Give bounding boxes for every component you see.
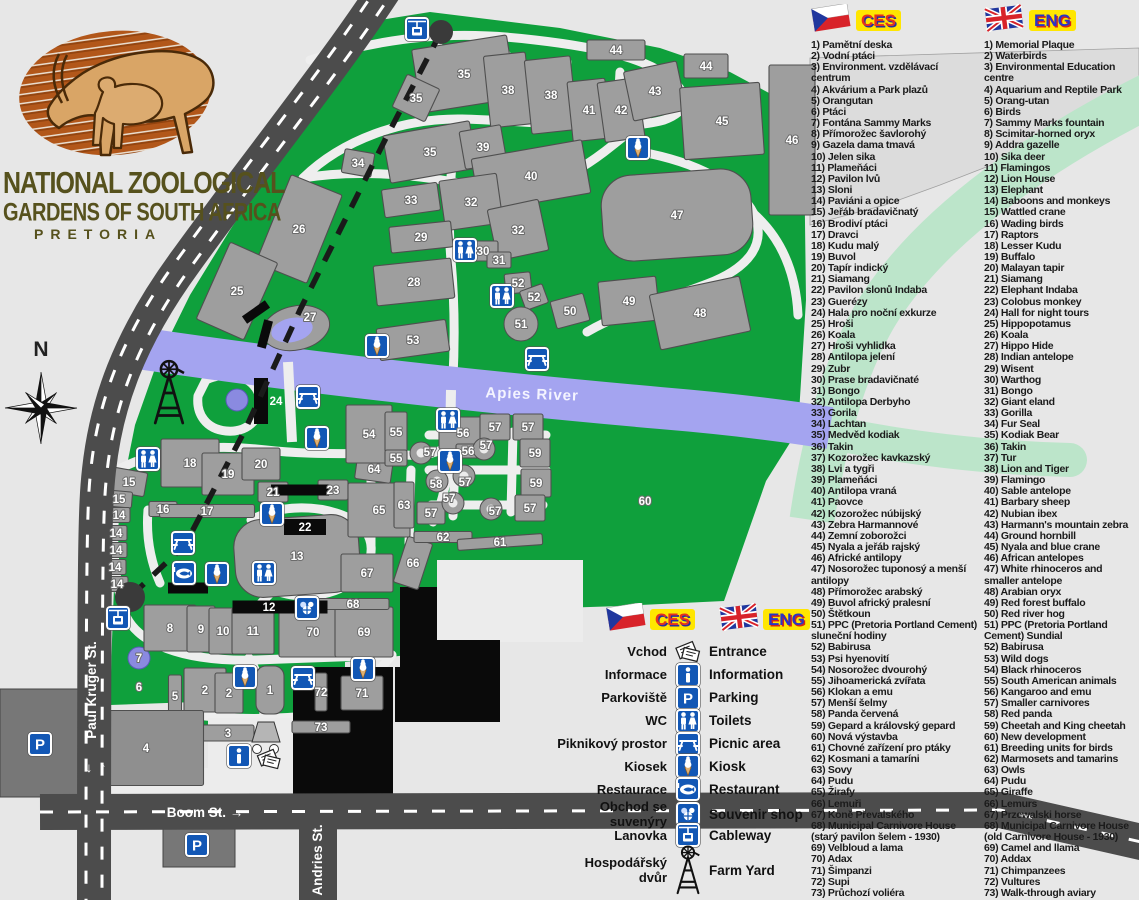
map-label-30: 30 bbox=[477, 246, 490, 258]
map-label-6: 6 bbox=[136, 682, 142, 694]
map-label-9: 9 bbox=[198, 624, 204, 636]
legend-key-row-parking: ParkovištěPParking bbox=[556, 685, 814, 708]
cableway-icon bbox=[405, 17, 430, 42]
english-key-badge: ENG bbox=[763, 609, 810, 630]
legend-key-row-farmyard: Hospodářský dvůrFarm Yard bbox=[556, 845, 814, 895]
zoo-title-line1: NATIONAL ZOOLOGICAL bbox=[3, 166, 251, 201]
legend-item-en: 70) Addax bbox=[984, 854, 1139, 865]
legend-item-en: 15) Wattled crane bbox=[984, 207, 1139, 218]
picnic-icon bbox=[291, 666, 316, 691]
legend-key-label-cs: Obchod se suvenýry bbox=[556, 799, 670, 829]
legend-key-label-en: Parking bbox=[706, 690, 814, 705]
legend-item-en: 9) Addra gazelle bbox=[984, 140, 1139, 151]
map-label-59: 59 bbox=[530, 478, 543, 490]
legend-key-label-en: Entrance bbox=[706, 644, 814, 659]
picnic-icon bbox=[296, 385, 321, 410]
map-label-63: 63 bbox=[398, 500, 411, 512]
map-label-57: 57 bbox=[522, 422, 535, 434]
restaurant-icon bbox=[172, 561, 197, 586]
legend-item-cs: 29) Zubr bbox=[811, 364, 979, 375]
map-label-21: 21 bbox=[267, 487, 280, 499]
map-label-8: 8 bbox=[167, 623, 174, 635]
map-label-57: 57 bbox=[425, 508, 438, 520]
kiosk-icon bbox=[438, 449, 463, 474]
legend-item-en: 58) Red panda bbox=[984, 709, 1139, 720]
legend-item-cs: 58) Panda červená bbox=[811, 709, 979, 720]
zoo-logo bbox=[2, 0, 254, 170]
map-label-25: 25 bbox=[231, 286, 244, 298]
map-label-20: 20 bbox=[255, 459, 268, 471]
map-label-57: 57 bbox=[524, 503, 537, 515]
map-label-14: 14 bbox=[110, 545, 123, 557]
legend-item-cs: 59) Gepard a královský gepard bbox=[811, 721, 979, 732]
map-label-5: 5 bbox=[172, 691, 179, 703]
map-label-57: 57 bbox=[424, 447, 437, 459]
antelope-logo-icon bbox=[2, 0, 254, 165]
map-label-44: 44 bbox=[700, 61, 713, 73]
legend-item-cs: 51) PPC (Pretoria Portland Cement) slune… bbox=[811, 620, 979, 642]
map-label-14: 14 bbox=[113, 510, 126, 522]
legend-key-label-en: Restaurant bbox=[706, 782, 814, 797]
map-label-60: 60 bbox=[639, 496, 652, 508]
map-label-22: 22 bbox=[299, 522, 312, 534]
symbol-legend: CES ENG VchodEntranceInformaceInformatio… bbox=[556, 603, 814, 895]
map-label-35: 35 bbox=[424, 147, 437, 159]
map-label-32: 32 bbox=[465, 197, 478, 209]
map-label-68: 68 bbox=[347, 599, 360, 611]
map-label-15: 15 bbox=[123, 477, 136, 489]
svg-text:N: N bbox=[33, 338, 48, 361]
map-label-32: 32 bbox=[512, 225, 525, 237]
legend-column-czech: CES 1) Pamětní deska2) Vodní ptáci3) Env… bbox=[811, 2, 979, 899]
legend-item-en: 29) Wisent bbox=[984, 364, 1139, 375]
map-label-72: 72 bbox=[315, 687, 328, 699]
legend-item-cs: 15) Jeřáb bradavičnatý bbox=[811, 207, 979, 218]
legend-list-english: 1) Memorial Plaque2) Waterbirds3) Enviro… bbox=[984, 40, 1139, 899]
map-label-48: 48 bbox=[694, 308, 707, 320]
symbol-legend-header: CES ENG bbox=[606, 603, 814, 636]
map-label-42: 42 bbox=[615, 105, 628, 117]
map-label-41: 41 bbox=[583, 105, 596, 117]
legend-key-label-en: Toilets bbox=[706, 713, 814, 728]
legend-key-label-cs: Parkoviště bbox=[556, 690, 670, 705]
entrance-icon bbox=[670, 639, 706, 664]
svg-text:P: P bbox=[192, 838, 202, 855]
map-label-29: 29 bbox=[415, 232, 428, 244]
legend-column-english: ENG 1) Memorial Plaque2) Waterbirds3) En… bbox=[984, 2, 1139, 899]
legend-key-label-en: Farm Yard bbox=[706, 863, 814, 878]
wc-icon bbox=[453, 238, 478, 263]
map-label-44: 44 bbox=[610, 45, 623, 57]
czech-flag-icon bbox=[606, 603, 646, 636]
map-label-27: 27 bbox=[304, 312, 317, 324]
wc-icon bbox=[136, 447, 161, 472]
legend-item-en: 16) Wading birds bbox=[984, 219, 1139, 230]
map-label-19: 19 bbox=[222, 469, 235, 481]
map-label-14: 14 bbox=[109, 562, 122, 574]
map-label-38: 38 bbox=[502, 85, 515, 97]
map-label-13: 13 bbox=[291, 551, 304, 563]
picnic-icon bbox=[525, 347, 550, 372]
cableway-icon bbox=[106, 606, 131, 631]
legend-item-cs: 65) Žirafy bbox=[811, 787, 979, 798]
legend-item-en: 65) Giraffe bbox=[984, 787, 1139, 798]
svg-text:↑: ↑ bbox=[100, 760, 107, 775]
czech-flag-icon bbox=[811, 4, 851, 37]
map-label-66: 66 bbox=[407, 558, 420, 570]
legend-item-en: 28) Indian antelope bbox=[984, 352, 1139, 363]
picnic-icon bbox=[171, 531, 196, 556]
legend-key-row-info: InformaceInformation bbox=[556, 662, 814, 685]
map-label-71: 71 bbox=[356, 688, 369, 700]
legend-item-en: 59) Cheetah and King cheetah bbox=[984, 721, 1139, 732]
zoo-map-page: Apies RiverPaul Kruger St.↓↑Boom St. →An… bbox=[0, 0, 1139, 900]
info-icon bbox=[227, 744, 252, 769]
kiosk-icon bbox=[365, 334, 390, 359]
map-label-52: 52 bbox=[528, 292, 541, 304]
map-label-7: 7 bbox=[136, 653, 142, 665]
map-label-62: 62 bbox=[437, 532, 450, 544]
map-label-4: 4 bbox=[143, 743, 150, 755]
english-header-badge: ENG bbox=[1029, 10, 1076, 31]
map-label-40: 40 bbox=[525, 171, 538, 183]
map-label-51: 51 bbox=[515, 319, 528, 331]
legend-key-row-kiosk: KiosekKiosk bbox=[556, 753, 814, 776]
legend-key-label-en: Picnic area bbox=[706, 736, 814, 751]
map-label-54: 54 bbox=[363, 429, 376, 441]
legend-key-label-en: Cableway bbox=[706, 828, 814, 843]
souvenir-icon bbox=[295, 596, 320, 621]
legend-key-label-cs: WC bbox=[556, 713, 670, 728]
uk-flag-icon bbox=[719, 603, 759, 636]
legend-key-label-en: Information bbox=[706, 667, 814, 682]
legend-key-label-cs: Piknikový prostor bbox=[556, 736, 670, 751]
parking-icon: P bbox=[185, 833, 210, 858]
map-label-23: 23 bbox=[327, 485, 340, 497]
legend-key-label-cs: Restaurace bbox=[556, 782, 670, 797]
map-label-53: 53 bbox=[407, 335, 420, 347]
compass-rose-icon: N bbox=[5, 338, 77, 444]
svg-text:Boom St. →: Boom St. → bbox=[167, 805, 244, 820]
legend-key-row-restaurant: RestauraceRestaurant bbox=[556, 776, 814, 799]
map-label-28: 28 bbox=[408, 277, 421, 289]
map-label-69: 69 bbox=[358, 627, 371, 639]
legend-item-cs: 22) Pavilon slonů Indaba bbox=[811, 285, 979, 296]
legend-key-label-cs: Lanovka bbox=[556, 828, 670, 843]
map-label-38: 38 bbox=[545, 90, 558, 102]
legend-key-row-souvenir: Obchod se suvenýrySouvenir shop bbox=[556, 799, 814, 822]
legend-item-en: 47) White rhinoceros and smaller antelop… bbox=[984, 564, 1139, 586]
legend-item-cs: 41) Paovce bbox=[811, 497, 979, 508]
map-label-33: 33 bbox=[405, 195, 418, 207]
map-label-65: 65 bbox=[373, 505, 386, 517]
legend-item-cs: 3) Environment. vzdělávací centrum bbox=[811, 62, 979, 84]
legend-item-en: 35) Kodiak Bear bbox=[984, 430, 1139, 441]
legend-item-cs: 68) Municipal Carnivore House (starý pav… bbox=[811, 821, 979, 843]
legend-key-label-cs: Kiosek bbox=[556, 759, 670, 774]
map-label-67: 67 bbox=[361, 568, 374, 580]
map-label-57: 57 bbox=[489, 422, 502, 434]
kiosk-icon bbox=[626, 136, 651, 161]
map-label-56: 56 bbox=[462, 446, 475, 458]
uk-flag-icon bbox=[984, 4, 1024, 37]
map-label-1: 1 bbox=[267, 685, 274, 697]
legend-item-cs: 16) Brodiví ptáci bbox=[811, 219, 979, 230]
map-label-50: 50 bbox=[564, 306, 577, 318]
map-label-58: 58 bbox=[430, 479, 443, 491]
map-label-55: 55 bbox=[390, 453, 403, 465]
map-label-52: 52 bbox=[512, 278, 525, 290]
legend-key-label-en: Kiosk bbox=[706, 759, 814, 774]
map-label-18: 18 bbox=[184, 458, 197, 470]
legend-key-label-en: Souvenir shop bbox=[706, 807, 814, 822]
kiosk-icon bbox=[233, 665, 258, 690]
legend-key-label-cs: Informace bbox=[556, 667, 670, 682]
map-label-16: 16 bbox=[157, 504, 170, 516]
map-label-12: 12 bbox=[263, 602, 276, 614]
map-label-39: 39 bbox=[477, 142, 490, 154]
legend-item-cs: 28) Antilopa jelení bbox=[811, 352, 979, 363]
legend-column-czech-header: CES bbox=[811, 2, 979, 38]
map-label-31: 31 bbox=[493, 255, 506, 267]
legend-item-cs: 52) Babirusa bbox=[811, 642, 979, 653]
parking-icon: P bbox=[28, 732, 53, 757]
legend-item-cs: 70) Adax bbox=[811, 854, 979, 865]
map-label-57: 57 bbox=[443, 493, 456, 505]
map-label-57: 57 bbox=[459, 477, 472, 489]
map-label-35: 35 bbox=[410, 93, 423, 105]
kiosk-icon bbox=[205, 562, 230, 587]
map-label-61: 61 bbox=[494, 537, 507, 549]
legend-item-en: 52) Babirusa bbox=[984, 642, 1139, 653]
map-label-14: 14 bbox=[111, 579, 124, 591]
legend-item-cs: 73) Průchozí voliéra bbox=[811, 888, 979, 899]
map-label-45: 45 bbox=[716, 116, 729, 128]
legend-list-czech: 1) Pamětní deska2) Vodní ptáci3) Environ… bbox=[811, 40, 979, 899]
svg-text:P: P bbox=[35, 737, 45, 754]
restaurant-icon bbox=[670, 776, 706, 802]
map-label-49: 49 bbox=[623, 296, 636, 308]
legend-item-cs: 35) Medvěd kodiak bbox=[811, 430, 979, 441]
map-label-15: 15 bbox=[113, 494, 126, 506]
legend-item-cs: 47) Nosorožec tuponosý a menší antilopy bbox=[811, 564, 979, 586]
svg-text:P: P bbox=[683, 690, 693, 707]
legend-key-row-entrance: VchodEntrance bbox=[556, 639, 814, 662]
wc-icon bbox=[252, 561, 277, 586]
map-label-56: 56 bbox=[457, 428, 470, 440]
map-label-24: 24 bbox=[270, 396, 283, 408]
zoo-title-line3: PRETORIA bbox=[34, 226, 162, 242]
legend-item-en: 3) Environmental Education centre bbox=[984, 62, 1139, 84]
farmyard-icon bbox=[670, 845, 706, 895]
map-label-55: 55 bbox=[390, 427, 403, 439]
czech-key-badge: CES bbox=[650, 609, 695, 630]
legend-key-label-cs: Vchod bbox=[556, 644, 670, 659]
map-label-10: 10 bbox=[217, 626, 230, 638]
map-label-46: 46 bbox=[786, 135, 799, 147]
legend-item-en: 41) Barbary sheep bbox=[984, 497, 1139, 508]
map-label-70: 70 bbox=[307, 627, 320, 639]
map-label-47: 47 bbox=[671, 210, 684, 222]
legend-item-en: 68) Municipal Carnivore House (old Carni… bbox=[984, 821, 1139, 843]
kiosk-icon bbox=[260, 502, 285, 527]
svg-text:Paul Kruger St.: Paul Kruger St. bbox=[84, 641, 99, 739]
zoo-title-line2: GARDENS OF SOUTH AFRICA bbox=[3, 199, 251, 228]
map-label-35: 35 bbox=[458, 69, 471, 81]
kiosk-icon bbox=[305, 426, 330, 451]
symbol-legend-rows: VchodEntranceInformaceInformationParkovi… bbox=[556, 639, 814, 895]
legend-key-row-wc: WCToilets bbox=[556, 708, 814, 731]
map-label-64: 64 bbox=[368, 464, 381, 476]
svg-text:↓: ↓ bbox=[86, 760, 93, 775]
svg-text:Apies River: Apies River bbox=[485, 384, 579, 404]
czech-header-badge: CES bbox=[856, 10, 901, 31]
map-label-11: 11 bbox=[247, 626, 260, 638]
legend-column-english-header: ENG bbox=[984, 2, 1139, 38]
legend-item-en: 73) Walk-through aviary bbox=[984, 888, 1139, 899]
legend-item-en: 51) PPC (Pretoria Portland Cement) Sundi… bbox=[984, 620, 1139, 642]
map-label-2: 2 bbox=[226, 688, 232, 700]
map-label-57: 57 bbox=[480, 440, 493, 452]
map-label-59: 59 bbox=[529, 448, 542, 460]
legend-key-row-picnic: Piknikový prostorPicnic area bbox=[556, 731, 814, 754]
map-label-57: 57 bbox=[489, 506, 502, 518]
svg-text:Andries St.: Andries St. bbox=[310, 824, 325, 895]
kiosk-icon bbox=[351, 657, 376, 682]
map-label-3: 3 bbox=[225, 728, 231, 740]
map-label-17: 17 bbox=[201, 506, 214, 518]
legend-key-label-cs: Hospodářský dvůr bbox=[556, 855, 670, 885]
legend-item-cs: 9) Gazela dama tmavá bbox=[811, 140, 979, 151]
map-label-34: 34 bbox=[352, 158, 365, 170]
map-label-2: 2 bbox=[202, 685, 208, 697]
legend-item-en: 22) Elephant Indaba bbox=[984, 285, 1139, 296]
map-label-73: 73 bbox=[315, 722, 328, 734]
map-label-26: 26 bbox=[293, 224, 306, 236]
map-label-14: 14 bbox=[110, 528, 123, 540]
map-label-43: 43 bbox=[649, 86, 662, 98]
